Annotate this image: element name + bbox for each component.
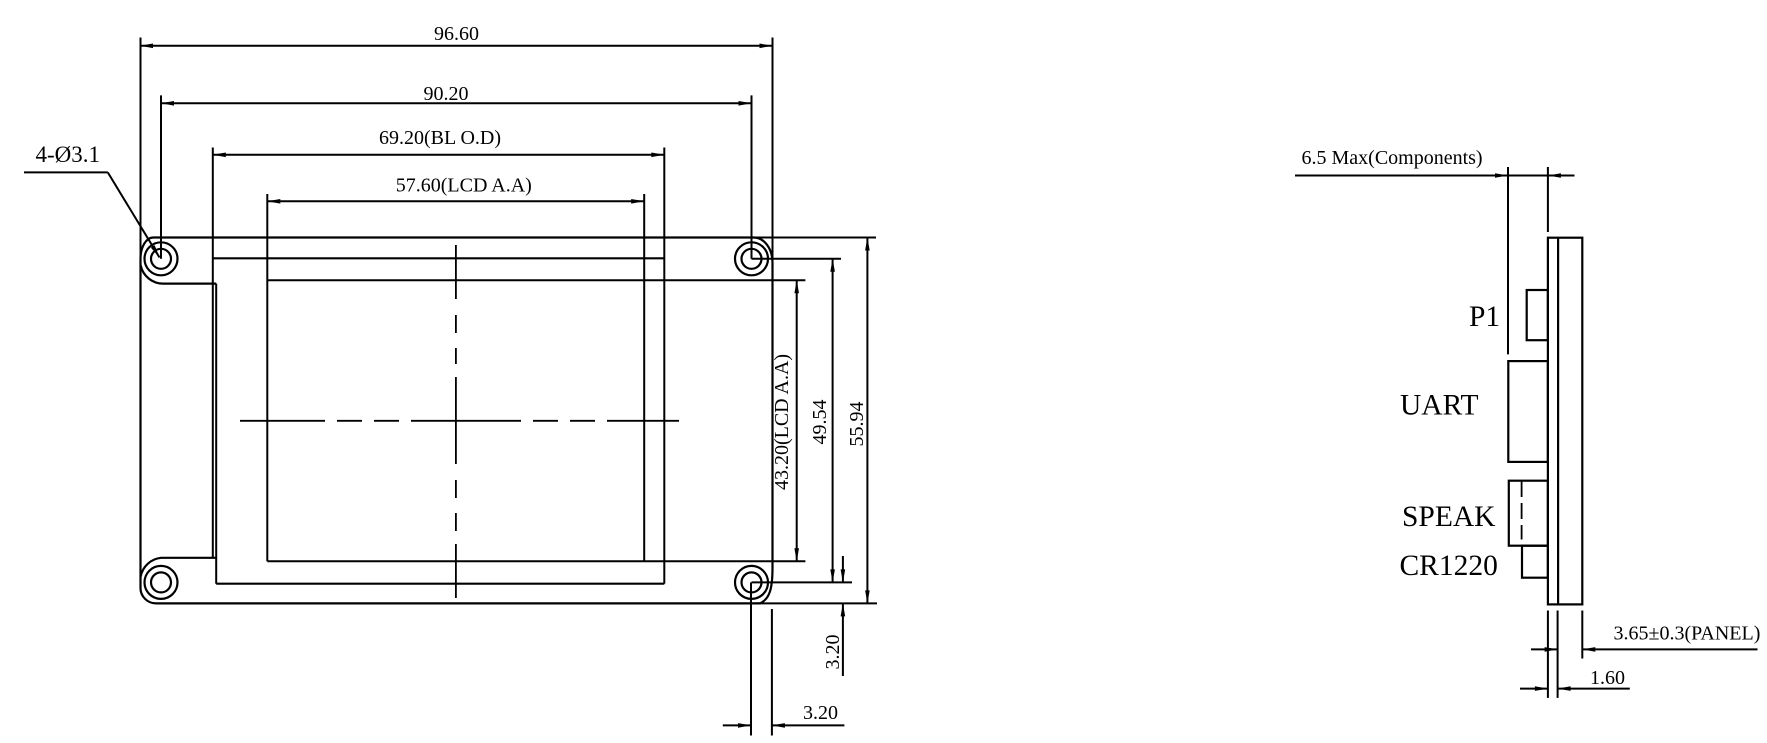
svg-text:4-Ø3.1: 4-Ø3.1	[36, 142, 101, 167]
svg-text:SPEAK: SPEAK	[1402, 501, 1495, 533]
svg-text:3.20: 3.20	[822, 635, 844, 670]
svg-text:96.60: 96.60	[434, 23, 479, 45]
svg-text:3.65±0.3(PANEL): 3.65±0.3(PANEL)	[1614, 623, 1761, 645]
svg-text:69.20(BL O.D): 69.20(BL O.D)	[379, 127, 501, 149]
svg-text:P1: P1	[1469, 301, 1500, 333]
svg-text:49.54: 49.54	[809, 400, 831, 445]
svg-text:55.94: 55.94	[846, 402, 868, 447]
svg-text:CR1220: CR1220	[1400, 550, 1498, 582]
svg-text:90.20: 90.20	[424, 83, 469, 105]
svg-text:UART: UART	[1400, 389, 1479, 421]
svg-text:57.60(LCD A.A): 57.60(LCD A.A)	[396, 175, 532, 197]
svg-text:1.60: 1.60	[1590, 667, 1625, 689]
svg-text:3.20: 3.20	[803, 702, 838, 724]
svg-text:6.5 Max(Components): 6.5 Max(Components)	[1302, 147, 1483, 169]
svg-text:43.20(LCD A.A): 43.20(LCD A.A)	[771, 354, 793, 490]
